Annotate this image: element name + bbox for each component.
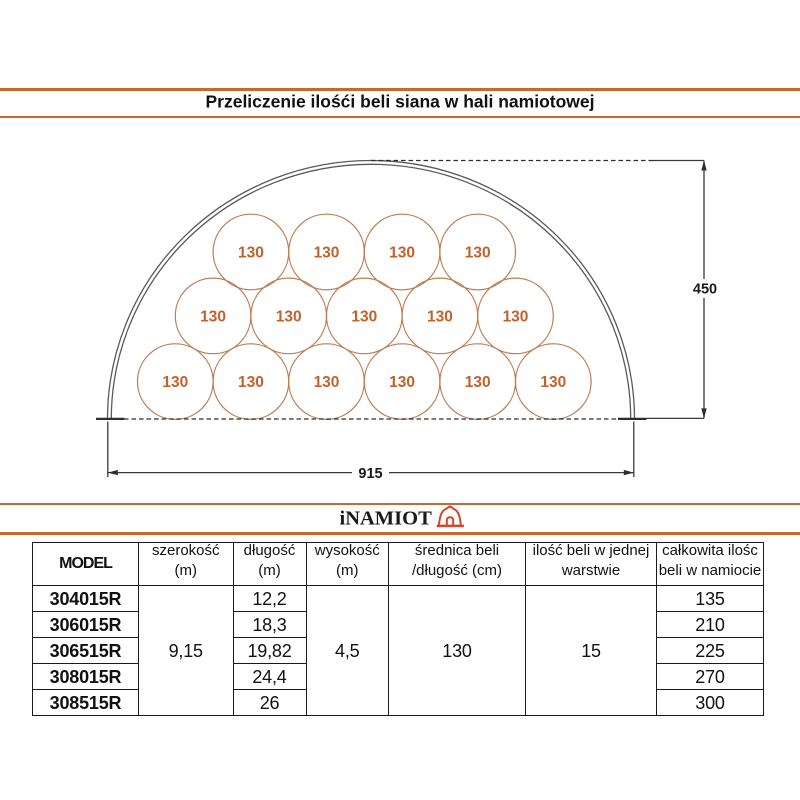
svg-text:130: 130 bbox=[351, 308, 377, 325]
svg-text:130: 130 bbox=[503, 308, 529, 325]
svg-text:130: 130 bbox=[389, 374, 415, 391]
svg-text:130: 130 bbox=[200, 308, 226, 325]
svg-text:130: 130 bbox=[276, 308, 302, 325]
svg-text:130: 130 bbox=[314, 245, 340, 262]
svg-text:130: 130 bbox=[314, 374, 340, 391]
svg-text:450: 450 bbox=[693, 282, 717, 298]
svg-text:130: 130 bbox=[540, 374, 566, 391]
svg-text:130: 130 bbox=[465, 245, 491, 262]
svg-text:Przeliczenie ilośći beli siana: Przeliczenie ilośći beli siana w hali na… bbox=[205, 91, 594, 111]
svg-text:130: 130 bbox=[389, 245, 415, 262]
svg-text:iNAMIOT: iNAMIOT bbox=[340, 508, 433, 530]
svg-text:130: 130 bbox=[427, 308, 453, 325]
svg-text:130: 130 bbox=[162, 374, 188, 391]
svg-text:130: 130 bbox=[465, 374, 491, 391]
svg-text:130: 130 bbox=[238, 374, 264, 391]
svg-text:130: 130 bbox=[238, 245, 264, 262]
svg-text:915: 915 bbox=[358, 466, 382, 482]
